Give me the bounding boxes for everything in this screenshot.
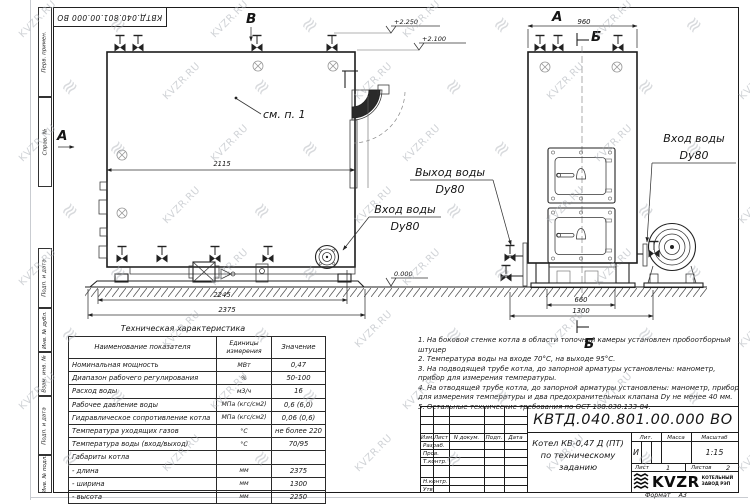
valve-icon [157, 247, 168, 263]
row-razrab: Разраб. [423, 443, 445, 449]
valve-icon [115, 36, 126, 52]
water-inlet-dn-side: Dy80 [391, 220, 420, 233]
sheet-label: Лист [635, 465, 649, 471]
table-row: Расход водым3/ч16 [69, 385, 326, 398]
pipe-mark-icon [117, 208, 127, 218]
lit-value: И [631, 448, 641, 457]
spec-cell: мм [217, 490, 272, 503]
mass-label: Масса [661, 435, 691, 441]
note-2: 2. Температура воды на входе 70°С, на вы… [418, 355, 740, 365]
dim-side-overall-width: 2375 [218, 306, 235, 314]
table-row: Гидравлическое сопротивление котлаМПа (к… [69, 411, 326, 424]
spec-cell [217, 451, 272, 464]
spec-cell: 0,06 (0,6) [272, 411, 326, 424]
col-list: Лист [433, 435, 449, 441]
spec-cell: Температура воды (вход/выход) [69, 438, 217, 451]
format-label: Формат [645, 492, 671, 499]
table-row: Диапазон рабочего регулирования%50-100 [69, 372, 326, 385]
spec-cell: °С [217, 438, 272, 451]
spec-cell: 2250 [272, 490, 326, 503]
technical-notes: 1. На боковой стенке котла в области топ… [418, 336, 740, 412]
row-nkontr: Н.контр. [423, 479, 448, 485]
title-block: КВТД.040.801.00.000 ВО Изм. Лист N докум… [420, 406, 739, 493]
valve-icon [501, 266, 512, 282]
table-row: Температура воды (вход/выход)°С70/95 [69, 438, 326, 451]
logo-subtext: КОТЕЛЬНЫЙ ЗАВОД РЭП [702, 476, 734, 487]
spec-cell: Номинальная мощность [69, 359, 217, 372]
upper-furnace-door [548, 148, 615, 203]
table-row: Рабочее давление водыМПа (кгс/см2)0,6 (6… [69, 398, 326, 411]
spec-cell: 70/95 [272, 438, 326, 451]
flue-gas-elbow [342, 71, 405, 188]
spec-cell: 16 [272, 385, 326, 398]
view-letter-A-side: А [56, 128, 67, 144]
boiler-side-view: 2115 [88, 36, 405, 320]
spec-cell: - ширина [69, 477, 217, 490]
lit-label: Лит. [631, 435, 661, 441]
col-podp: Подп. [484, 435, 504, 441]
dim-side-inner-width: 2115 [213, 160, 230, 168]
col-data: Дата [504, 435, 527, 441]
spec-cell: Температура уходящих газов [69, 424, 217, 437]
table-row: Номинальная мощностьМВт0,47 [69, 359, 326, 372]
spec-cell: 1300 [272, 477, 326, 490]
spec-cell: °С [217, 424, 272, 437]
product-name: Котел КВ-0,47 Д (ПТ) по техническому зад… [527, 437, 629, 473]
spec-col-value: Значение [272, 337, 326, 359]
spec-cell: м3/ч [217, 385, 272, 398]
valve-icon [252, 36, 263, 52]
spec-col-name: Наименование показателя [69, 337, 217, 359]
document-number: КВТД.040.801.00.000 ВО [527, 407, 738, 433]
drawing-sheet: Перв. примен. Справ. № Подп. и дата Инв.… [0, 0, 750, 500]
spec-cell: МПа (кгс/см2) [217, 411, 272, 424]
boiler-front-view: 960 660 1300 [501, 18, 704, 320]
view-letters: А В А Б Б [56, 9, 601, 352]
product-line1: Котел КВ-0,47 Д (ПТ) [527, 437, 629, 449]
logo-sub1: КОТЕЛЬНЫЙ [702, 476, 734, 482]
water-inlet-dn-front: Dy80 [680, 149, 709, 162]
valve-icon [535, 36, 546, 52]
pipe-mark-icon [253, 61, 263, 71]
blower-fan [644, 224, 703, 288]
lower-furnace-door [548, 208, 615, 263]
logo-sub2: ЗАВОД РЭП [702, 482, 734, 488]
note-1: 1. На боковой стенке котла в области топ… [418, 336, 740, 355]
front-foundation [531, 263, 635, 288]
spec-cell: - высота [69, 490, 217, 503]
spec-table-title: Техническая характеристика [68, 324, 298, 333]
spec-cell: - длина [69, 464, 217, 477]
spec-cell: 50-100 [272, 372, 326, 385]
valve-icon [263, 247, 274, 263]
table-row: Температура уходящих газов°Сне более 220 [69, 424, 326, 437]
spec-cell: 0,47 [272, 359, 326, 372]
scale-label: Масштаб [691, 435, 738, 441]
pipe-mark-icon [540, 62, 550, 72]
product-line2: по техническому заданию [527, 449, 629, 473]
table-row: - длинамм2375 [69, 464, 326, 477]
dim-front-overall-width: 1300 [572, 307, 589, 315]
elevation-boiler-top: +2.100 [422, 35, 446, 43]
spec-table: Наименование показателя Единицы измерени… [68, 336, 326, 504]
valve-icon [613, 36, 624, 52]
front-top-dim: 960 [528, 18, 637, 48]
spec-cell: Расход воды [69, 385, 217, 398]
sheets-label: Листов [691, 465, 712, 471]
water-inlet-label-side: Вход воды [374, 203, 436, 216]
logo-coil-icon [633, 473, 650, 490]
inlet-flange [316, 246, 339, 269]
scale-value: 1:15 [691, 448, 738, 457]
row-prov: Пров. [423, 451, 439, 457]
elevation-marks: +2.250 +2.100 0.000 [334, 18, 466, 286]
col-izm: Изм. [421, 435, 433, 441]
table-row: - ширинамм1300 [69, 477, 326, 490]
format-value: А3 [679, 492, 687, 499]
dim-side-base-width: 2245 [213, 291, 230, 299]
callout-see-note-1: см. п. 1 [263, 108, 306, 121]
note-4: 4. На отводящей трубе котла, до запорной… [418, 384, 740, 403]
view-letter-A-front: А [551, 9, 562, 25]
spec-cell: Диапазон рабочего регулирования [69, 372, 217, 385]
spec-cell: мм [217, 464, 272, 477]
water-inlet-label-front: Вход воды [663, 132, 725, 145]
pipe-mark-icon [328, 61, 338, 71]
manufacturer-logo: KVZR КОТЕЛЬНЫЙ ЗАВОД РЭП [633, 471, 738, 492]
valve-icon [553, 36, 564, 52]
valve-icon [210, 247, 221, 263]
logo-text: KVZR [652, 473, 700, 491]
callouts: см. п. 1 Выход воды Dy80 Вход воды Dy80 … [235, 97, 736, 250]
spec-cell: не более 220 [272, 424, 326, 437]
dim-front-base-width: 660 [575, 296, 588, 304]
water-outlet-label: Выход воды [415, 166, 485, 179]
valve-icon [117, 247, 128, 263]
spec-cell [272, 451, 326, 464]
pipe-mark-icon [612, 62, 622, 72]
row-tkontr: Т.контр. [423, 459, 447, 465]
valve-icon [327, 36, 338, 52]
spec-cell: Габариты котла [69, 451, 217, 464]
valve-icon [505, 246, 516, 262]
format-note: ФорматА3 [645, 492, 695, 499]
dim-front-top-width: 960 [578, 18, 591, 26]
spec-cell: МВт [217, 359, 272, 372]
elevation-ground: 0.000 [394, 270, 413, 278]
section-letter-B-top: Б [591, 29, 601, 45]
row-utv: Утв. [423, 487, 435, 493]
col-doc: N докум. [449, 435, 484, 441]
spec-header-row: Наименование показателя Единицы измерени… [69, 337, 326, 359]
spec-cell: Гидравлическое сопротивление котла [69, 411, 217, 424]
outlet-pipes [501, 243, 528, 286]
note-3: 3. На подводящей трубе котла, до запорно… [418, 365, 740, 384]
table-row: - высотамм2250 [69, 490, 326, 503]
spec-cell: 0,6 (6,0) [272, 398, 326, 411]
water-outlet-dn: Dy80 [436, 183, 465, 196]
table-row: Габариты котла [69, 451, 326, 464]
spec-cell: МПа (кгс/см2) [217, 398, 272, 411]
side-foundation [90, 262, 364, 287]
pipe-mark-icon [117, 150, 127, 160]
view-letter-B-top: В [246, 11, 256, 27]
spec-cell: 2375 [272, 464, 326, 477]
valve-icon [649, 242, 660, 258]
ground-line [85, 287, 707, 297]
spec-col-units: Единицы измерения [217, 337, 272, 359]
spec-cell: мм [217, 477, 272, 490]
spec-cell: Рабочее давление воды [69, 398, 217, 411]
valve-icon [133, 36, 144, 52]
spec-cell: % [217, 372, 272, 385]
elevation-valves-top: +2.250 [394, 18, 418, 26]
